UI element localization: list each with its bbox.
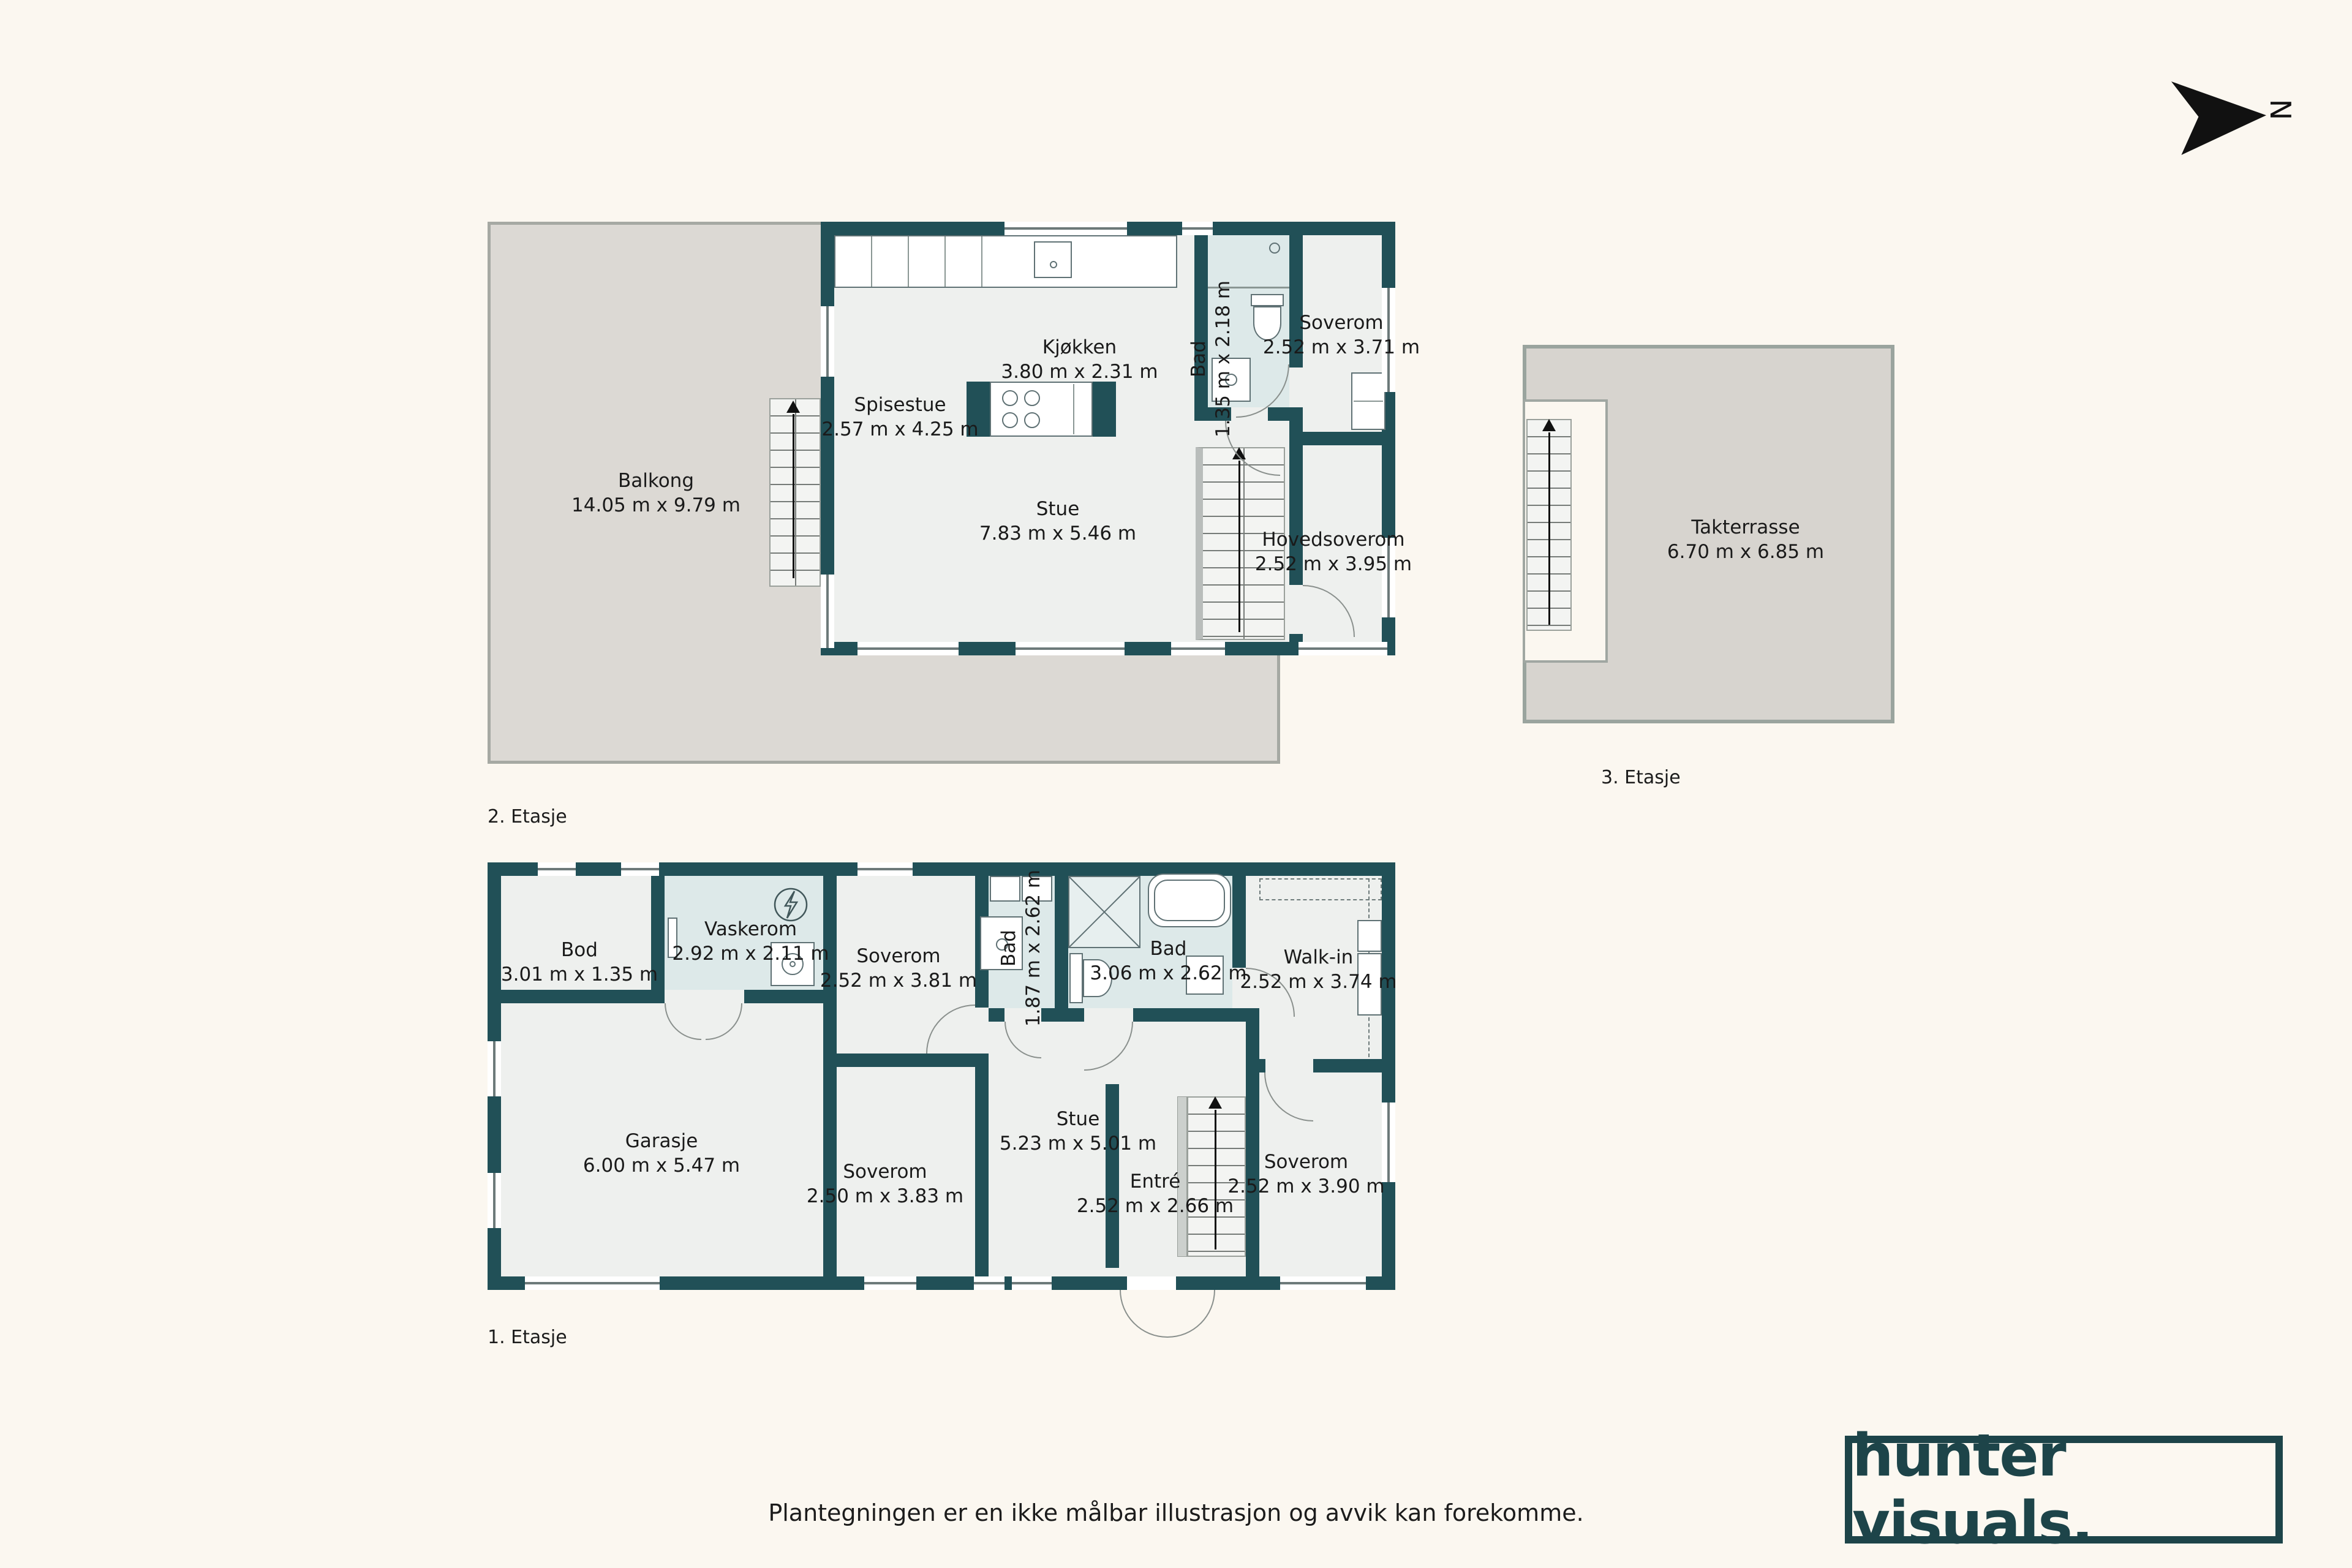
window: [864, 1276, 916, 1290]
room-dims: 2.52 m x 3.95 m: [1255, 552, 1412, 577]
wall: [1303, 432, 1395, 445]
room-name: Vaskerom: [704, 918, 797, 942]
brand-name: hunter visuals.: [1852, 1422, 2275, 1557]
wall: [975, 1053, 989, 1290]
floor-label-1-etasje: 1. Etasje: [488, 1327, 567, 1348]
room-name: Garasje: [625, 1129, 698, 1154]
room-dims: 1.35 m x 2.18 m: [1212, 281, 1236, 437]
room-label-hovedsoverom: Hovedsoverom 2.52 m x 3.95 m: [1257, 528, 1410, 576]
room-dims: 7.83 m x 5.46 m: [979, 522, 1136, 546]
garage-door: [488, 1041, 501, 1096]
room-name: Stue: [1036, 497, 1080, 522]
wardrobe: [1259, 878, 1382, 900]
wall: [1259, 1059, 1265, 1072]
room-label-soverom-bottom: Soverom 2.50 m x 3.83 m: [815, 1160, 956, 1208]
brand-logo: hunter visuals.: [1845, 1436, 2283, 1543]
garage-door: [488, 1173, 501, 1228]
stair-up-arrow-icon: [1542, 419, 1556, 431]
room-dims: 3.80 m x 2.31 m: [1001, 360, 1158, 385]
room-label-spisestue: Spisestue 2.57 m x 4.25 m: [834, 393, 966, 442]
kitchen-island: [990, 382, 1093, 437]
room-name: Soverom: [1264, 1150, 1348, 1175]
wall: [1133, 1008, 1246, 1022]
room-dims: 5.23 m x 5.01 m: [1000, 1132, 1156, 1156]
window: [621, 862, 659, 876]
room-name: Kjøkken: [1042, 336, 1117, 360]
window: [538, 862, 576, 876]
stair-direction-line: [1548, 432, 1550, 625]
room-name: Walk-in: [1284, 946, 1354, 970]
room-label-takterrasse: Takterrasse 6.70 m x 6.85 m: [1623, 516, 1868, 564]
floorplan-canvas: N: [0, 0, 2352, 1568]
window: [1005, 222, 1127, 235]
window: [1012, 1276, 1052, 1290]
room-name: Hovedsoverom: [1262, 528, 1404, 552]
room-name: Bod: [561, 938, 598, 963]
window: [1016, 642, 1125, 655]
room-dims: 2.52 m x 3.74 m: [1240, 970, 1396, 995]
room-dims: 3.06 m x 2.62 m: [1090, 962, 1246, 986]
room-name: Bad: [1150, 937, 1187, 962]
room-dims: 2.50 m x 3.83 m: [807, 1185, 963, 1209]
cabinet-line: [981, 236, 982, 287]
cabinet-line: [871, 236, 872, 287]
wall: [1246, 1008, 1259, 1290]
window: [821, 306, 834, 377]
kitchen-sink-icon: [1034, 241, 1072, 278]
room-label-bod: Bod 3.01 m x 1.35 m: [506, 938, 653, 987]
room-label-walk-in: Walk-in 2.52 m x 3.74 m: [1249, 946, 1387, 994]
room-name: Stue: [1057, 1107, 1100, 1132]
room-label-kjokken: Kjøkken 3.80 m x 2.31 m: [1005, 336, 1155, 384]
island-end: [1091, 382, 1116, 437]
stove-burner-icon: [1002, 412, 1018, 428]
door-swing: [1120, 1290, 1167, 1338]
room-dims: 2.52 m x 3.90 m: [1227, 1175, 1384, 1199]
room-dims: 6.70 m x 6.85 m: [1667, 540, 1824, 565]
floor-label-3-etasje: 3. Etasje: [1601, 767, 1681, 788]
wardrobe: [1351, 372, 1385, 430]
room-label-vaskerom: Vaskerom 2.92 m x 2.11 m: [673, 918, 829, 966]
room-name: Soverom: [1299, 311, 1383, 336]
room-name: Balkong: [618, 469, 694, 494]
room-label-bad-2: Bad 3.06 m x 2.62 m: [1096, 937, 1240, 986]
window: [821, 575, 834, 648]
room-name: Bad: [1187, 341, 1212, 377]
room-dims: 1.87 m x 2.62 m: [1022, 870, 1046, 1027]
room-dims: 3.01 m x 1.35 m: [501, 963, 658, 987]
stove-burner-icon: [1024, 390, 1040, 406]
cabinet-line: [908, 236, 909, 287]
room-dims: 2.52 m x 3.81 m: [820, 969, 977, 993]
window: [1298, 642, 1387, 655]
room-dims: 2.52 m x 2.66 m: [1077, 1194, 1234, 1219]
north-arrow-icon: [2165, 81, 2266, 155]
window: [858, 862, 913, 876]
wall: [1313, 1059, 1382, 1072]
window: [858, 642, 959, 655]
wall: [501, 990, 665, 1003]
window: [1382, 1102, 1395, 1182]
toilet-icon: [1251, 294, 1284, 306]
room-dims: 6.00 m x 5.47 m: [583, 1154, 740, 1178]
room-label-stue-1fl: Stue 5.23 m x 5.01 m: [1001, 1107, 1155, 1156]
room-dims: 2.92 m x 2.11 m: [672, 942, 829, 967]
stove-burner-icon: [1002, 390, 1018, 406]
room-dims: 2.57 m x 4.25 m: [821, 418, 978, 442]
wall: [744, 990, 823, 1003]
stair-up-arrow-icon: [786, 401, 800, 413]
room-label-entre: Entré 2.52 m x 2.66 m: [1088, 1170, 1223, 1218]
shower-head-icon: [1269, 243, 1280, 254]
bathtub-icon: [1148, 873, 1231, 927]
stair-up-arrow-icon: [1208, 1096, 1222, 1109]
window: [974, 1276, 1005, 1290]
room-label-stue-2fl: Stue 7.83 m x 5.46 m: [975, 497, 1140, 546]
room-label-bad-1: Bad 1.87 m x 2.62 m: [1000, 856, 1044, 1040]
room-name: Soverom: [843, 1160, 927, 1185]
room-name: Entré: [1130, 1170, 1181, 1194]
window: [1171, 642, 1225, 655]
room-label-garasje: Garasje 6.00 m x 5.47 m: [582, 1129, 741, 1178]
wall: [1055, 862, 1068, 1022]
floor-label-2-etasje: 2. Etasje: [488, 806, 567, 827]
window: [525, 1276, 660, 1290]
cabinet-line: [944, 236, 946, 287]
room-dims: 2.52 m x 3.71 m: [1263, 336, 1420, 360]
kitchen-counter: [834, 235, 1177, 288]
room-name: Spisestue: [854, 393, 946, 418]
stair-direction-line: [1238, 461, 1240, 632]
wall: [837, 1053, 975, 1067]
entry-door-opening: [1127, 1276, 1176, 1290]
door-swing: [1167, 1290, 1215, 1338]
room-label-soverom-mid: Soverom 2.52 m x 3.81 m: [828, 944, 969, 993]
window: [1182, 222, 1213, 235]
north-label: N: [2264, 99, 2297, 120]
toilet-icon: [1069, 953, 1083, 1003]
room-label-soverom-2fl: Soverom 2.52 m x 3.71 m: [1268, 311, 1415, 360]
room-name: Takterrasse: [1691, 516, 1800, 540]
room-dims: 14.05 m x 9.79 m: [571, 494, 741, 518]
room-label-bad-2fl: Bad 1.35 m x 2.18 m: [1189, 267, 1234, 451]
stove-burner-icon: [1024, 412, 1040, 428]
room-name: Bad: [997, 930, 1022, 967]
window: [1280, 1276, 1366, 1290]
room-label-balkong: Balkong 14.05 m x 9.79 m: [488, 469, 824, 518]
room-name: Soverom: [856, 944, 940, 969]
room-label-soverom-right: Soverom 2.52 m x 3.90 m: [1237, 1150, 1375, 1199]
